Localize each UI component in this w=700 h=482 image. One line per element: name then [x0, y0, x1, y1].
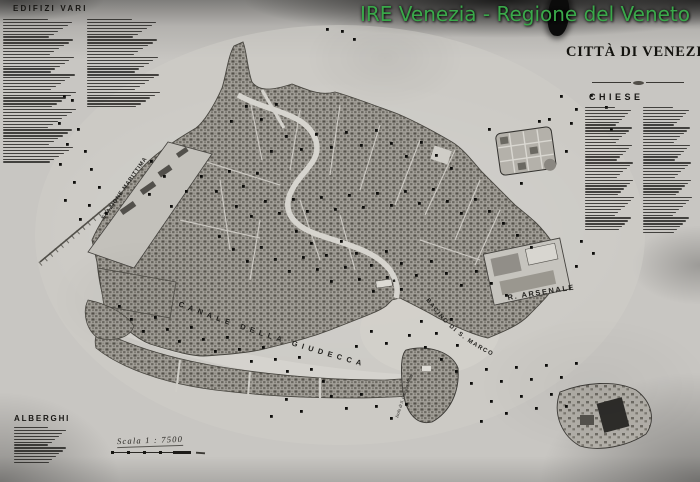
legend-chiese-title: CHIESE — [589, 92, 697, 102]
legend-edifizi-col1 — [3, 19, 81, 164]
sant-elena-buildings — [580, 415, 594, 425]
legend-alberghi-col1 — [14, 427, 72, 465]
scale-bar — [111, 450, 191, 456]
legend-alberghi-title: ALBERGHI — [14, 414, 84, 423]
map-title: CITTÀ DI VENEZIA — [566, 44, 700, 62]
legend-chiese-col1 — [585, 107, 637, 235]
legend-edifizi-col2 — [87, 19, 165, 164]
san-michele-cemetery — [495, 126, 557, 177]
overlay-caption: IRE Venezia - Regione del Veneto — [360, 2, 690, 26]
legend-chiese-col2 — [643, 107, 695, 235]
venice-map-photo: CANALE DELLA GIUDECCA BACINO DI S. MARCO… — [0, 0, 700, 482]
legend-alberghi: ALBERGHI — [14, 414, 84, 465]
legend-edifizi-vari: EDIFIZI VARI — [3, 4, 169, 164]
scale-label: Scala 1 : 7500 — [117, 434, 184, 448]
san-giorgio-church — [422, 366, 431, 371]
title-divider-ornament — [592, 80, 684, 85]
legend-chiese: CHIESE — [585, 92, 697, 235]
legend-edifizi-vari-title: EDIFIZI VARI — [13, 4, 169, 13]
